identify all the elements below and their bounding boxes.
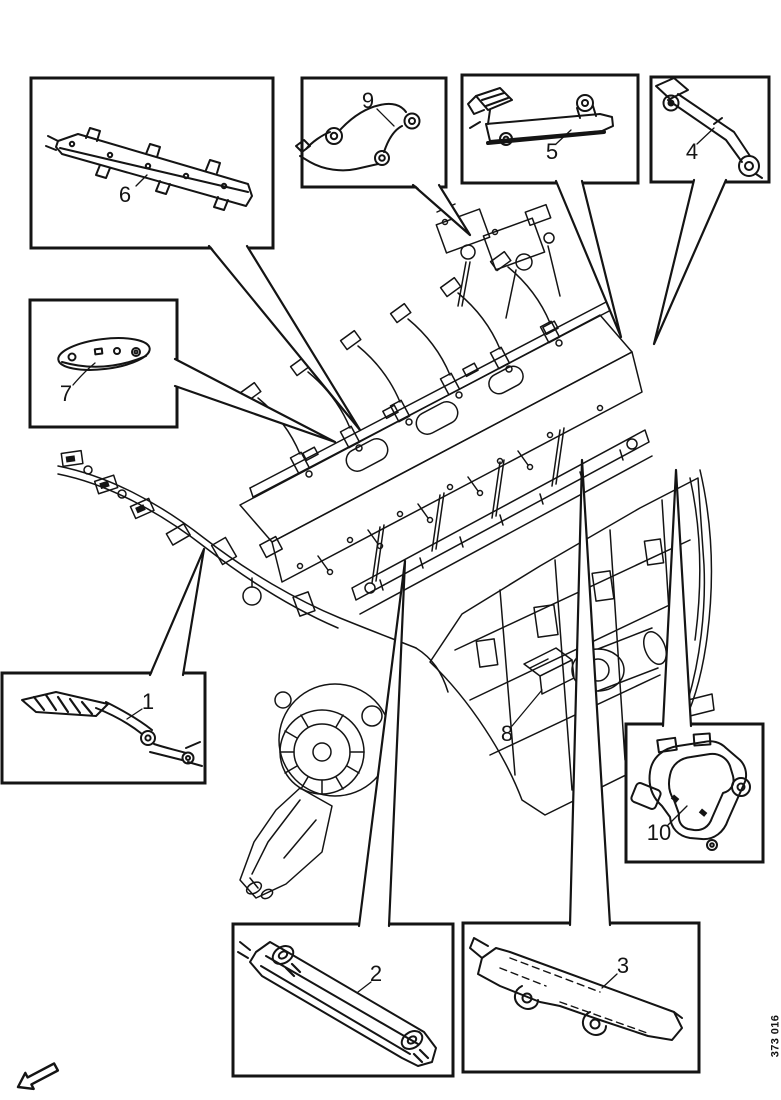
crank-pulley [275,684,391,796]
callout-number-6: 6 [119,184,131,206]
funnel-3 [570,460,610,927]
callout-number-5: 5 [546,141,558,163]
callout-number-1: 1 [142,691,154,713]
injector-pipes [372,428,564,583]
callout-box-6 [31,78,273,248]
callout-number-3: 3 [617,955,629,977]
oil-pan [240,788,332,900]
callout-number-8: 8 [501,723,513,745]
callout-number-4: 4 [686,141,698,163]
leader-8 [512,690,542,726]
funnel-10 [663,470,691,728]
callout-number-2: 2 [370,963,382,985]
callout-number-9: 9 [362,90,374,112]
callout-box-1 [2,673,205,783]
callout-box-7 [30,300,177,427]
injector [441,278,512,372]
injector [341,331,412,425]
funnel-4 [654,178,726,344]
funnel-5 [556,179,621,337]
injector [391,304,462,398]
funnel-1 [150,549,204,678]
direction-arrow-icon [18,1064,58,1089]
injectors-and-wires [241,252,562,477]
callout-number-7: 7 [60,383,72,405]
funnel-9 [413,183,470,235]
engine-parts-diagram [0,0,781,1100]
callout-box-3 [463,923,699,1072]
parts-diagram-page: 1 2 3 4 5 6 7 8 9 10 373 016 [0,0,781,1100]
figure-code: 373 016 [770,1015,781,1058]
funnel-2 [359,561,405,928]
callout-number-10: 10 [647,822,671,844]
